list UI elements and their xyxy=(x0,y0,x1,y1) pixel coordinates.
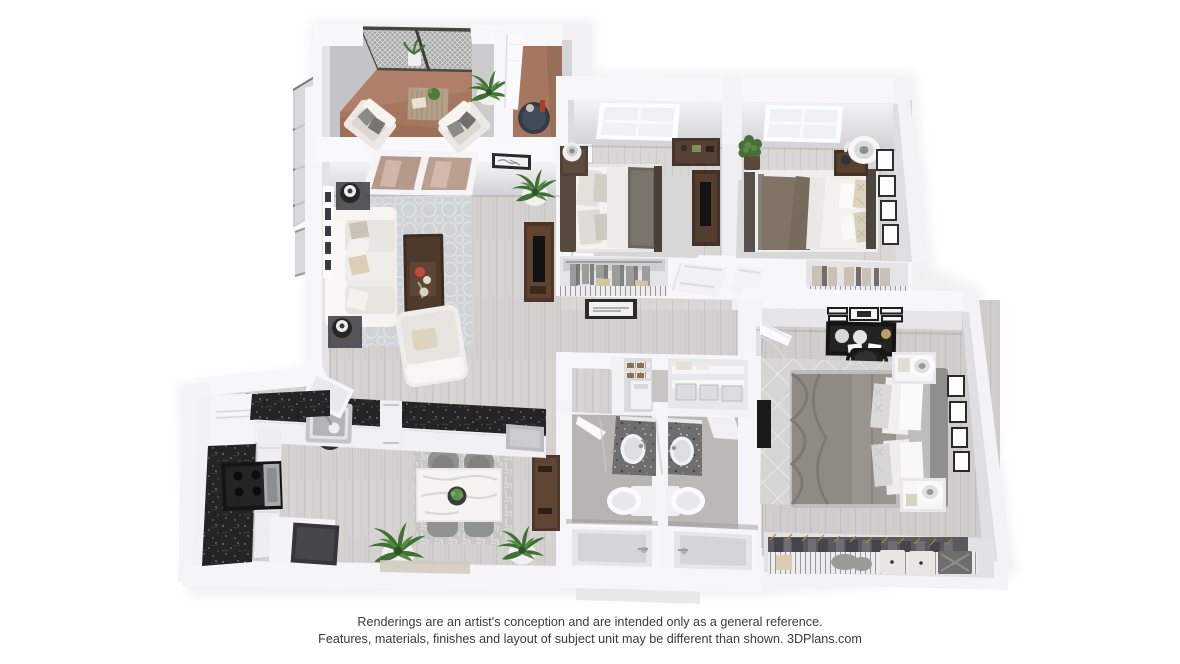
svg-text:Renderings are an artist's con: Renderings are an artist's conception an… xyxy=(357,615,822,629)
svg-text:Features, materials, finishes: Features, materials, finishes and layout… xyxy=(318,632,862,646)
